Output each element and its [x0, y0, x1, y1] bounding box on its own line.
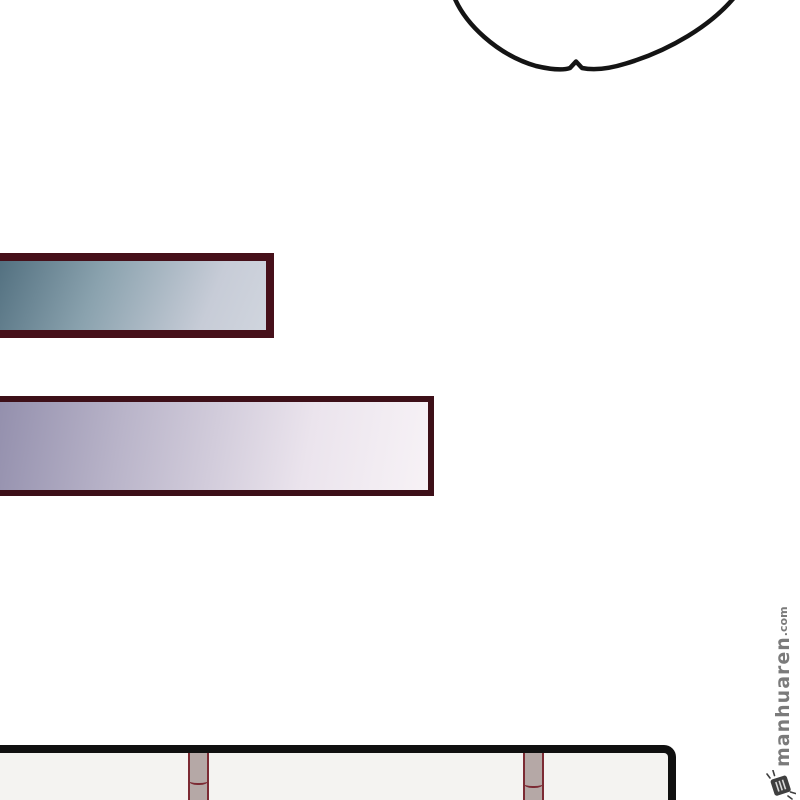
- gradient-banner-bottom: [0, 396, 434, 496]
- watermark: manhuaren .com: [768, 614, 798, 800]
- comic-page: manhuaren .com: [0, 0, 800, 800]
- gradient-banner-top: [0, 253, 274, 338]
- table-leg-joint: [189, 776, 208, 785]
- table-leg-right: [523, 753, 544, 800]
- watermark-site-name: manhuaren: [774, 636, 793, 767]
- table-leg-left: [188, 753, 209, 800]
- comic-panel-frame: [0, 745, 676, 800]
- stamp-seal-logo-icon: [766, 770, 800, 800]
- table-leg-joint: [524, 779, 543, 788]
- speech-bubble-bottom-curve: [0, 0, 800, 110]
- watermark-domain-suffix: .com: [778, 606, 789, 636]
